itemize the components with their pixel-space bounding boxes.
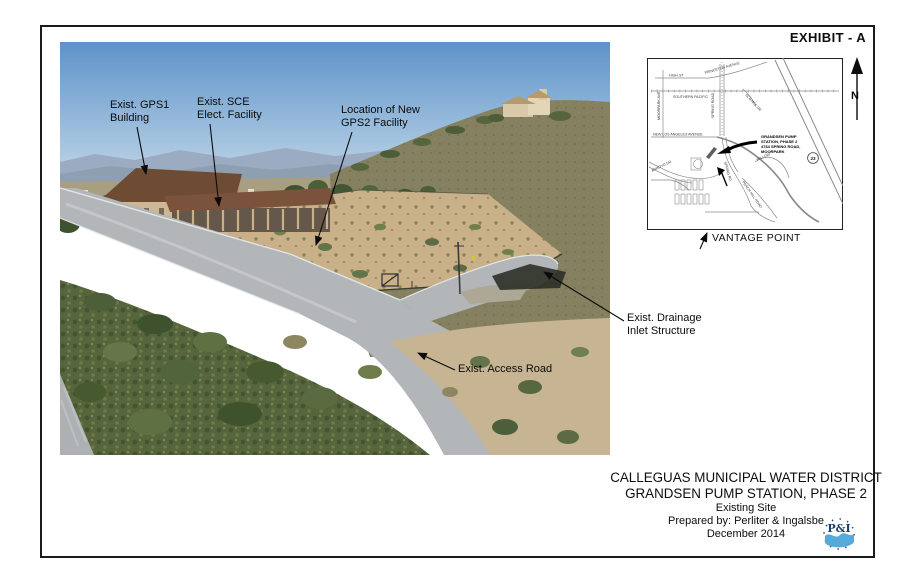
svg-text:MOORPARK AVE.: MOORPARK AVE.	[657, 91, 661, 120]
sheet-subtitle: Existing Site	[596, 502, 896, 515]
annotation-sce-facility: Exist. SCE Elect. Facility	[197, 96, 262, 122]
svg-text:NEW LOS ANGELES AVENUE: NEW LOS ANGELES AVENUE	[653, 133, 703, 137]
annotation-gps1-building: Exist. GPS1 Building	[110, 99, 169, 125]
svg-text:SOUTHERN PACIFIC: SOUTHERN PACIFIC	[673, 95, 708, 99]
district-name: CALLEGUAS MUNICIPAL WATER DISTRICT	[596, 470, 896, 486]
annotation-drainage-inlet: Exist. Drainage Inlet Structure	[627, 312, 702, 338]
exhibit-title: EXHIBIT - A	[600, 30, 866, 45]
project-name: GRANDSEN PUMP STATION, PHASE 2	[596, 486, 896, 502]
annotation-access-road: Exist. Access Road	[458, 363, 552, 376]
vantage-point-label: VANTAGE POINT	[712, 232, 801, 244]
svg-text:23: 23	[810, 156, 816, 161]
logo-monogram: P&I	[827, 522, 850, 535]
perliter-ingalsbe-logo: P&I	[821, 516, 857, 552]
vicinity-map: 23 HIGH ST PRINCETON AVENUE SOUTHERN PAC…	[647, 58, 843, 230]
annotation-gps2-location: Location of New GPS2 Facility	[341, 104, 420, 130]
svg-text:HIGH ST: HIGH ST	[669, 74, 684, 78]
svg-text:MOORPARK: MOORPARK	[761, 149, 785, 154]
svg-text:SPRING ROAD: SPRING ROAD	[711, 92, 715, 118]
route-23-badge: 23	[808, 153, 819, 164]
